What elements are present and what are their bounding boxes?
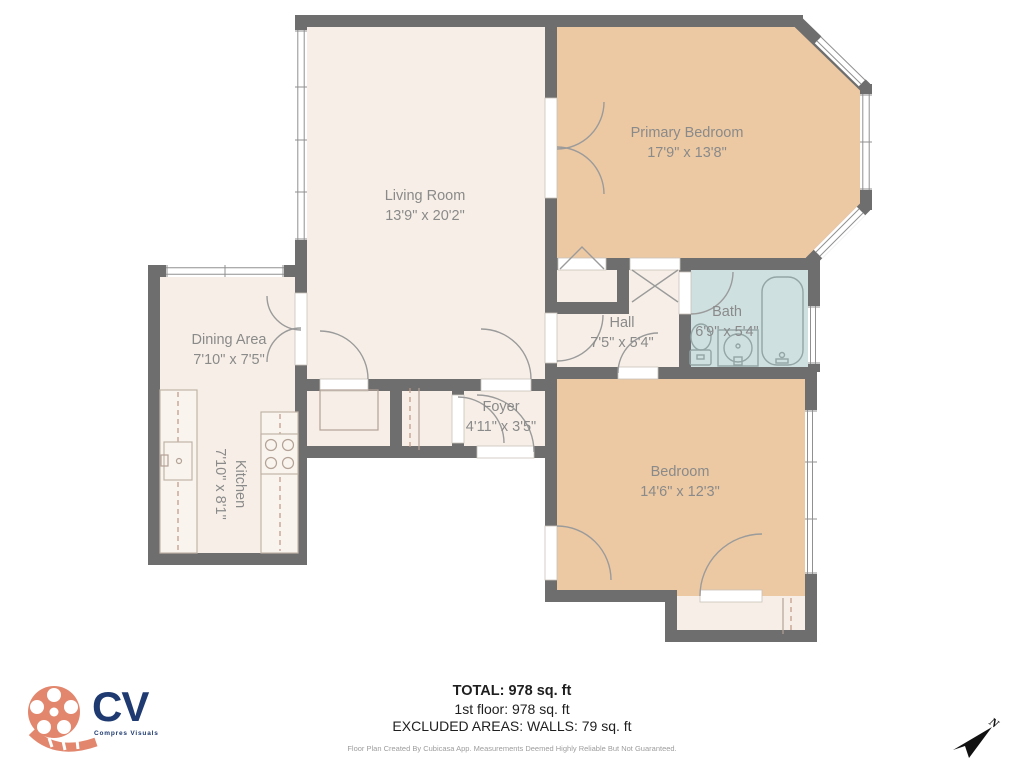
room-dims: 7'10" x 7'5" [192,350,267,370]
room-name: Living Room [385,186,466,206]
room-name: Foyer [466,397,536,417]
dining-area-label: Dining Area 7'10" x 7'5" [192,330,267,370]
stove [261,434,298,474]
bedroom-window [805,410,817,574]
film-reel-icon [20,680,100,760]
hall-label: Hall 7'5" x 5'4" [590,313,653,353]
kitchen-counter-right [261,412,298,553]
room-name: Bath [695,302,758,322]
room-dims: 4'11" x 3'5" [466,417,536,437]
room-dims: 7'10" x 8'1" [210,448,230,519]
floorplan-page: N Living Room 13'9" x 20'2" Primary Bedr… [0,0,1024,768]
room-name: Kitchen [230,448,250,519]
room-name: Hall [590,313,653,333]
primary-bedroom-label: Primary Bedroom 17'9" x 13'8" [631,123,744,163]
room-name: Dining Area [192,330,267,350]
bath-label: Bath 6'9" x 5'4" [695,302,758,342]
room-dims: 14'6" x 12'3" [640,482,720,502]
logo-subtext: Compres Visuals [94,730,159,737]
living-room-label: Living Room 13'9" x 20'2" [385,186,466,226]
company-logo: CV Compres Visuals [20,680,220,760]
room-dims: 6'9" x 5'4" [695,322,758,342]
kitchen-label: Kitchen 7'10" x 8'1" [210,448,250,519]
bath-window [808,306,820,364]
room-name: Bedroom [640,462,720,482]
dining-window [166,265,284,277]
room-dims: 7'5" x 5'4" [590,333,653,353]
logo-text: CV [92,686,148,728]
bedroom-label: Bedroom 14'6" x 12'3" [640,462,720,502]
kitchen-counter-left [160,390,197,553]
room-foyer-closets [301,385,464,454]
room-dims: 17'9" x 13'8" [631,143,744,163]
room-dims: 13'9" x 20'2" [385,206,466,226]
bay-window-right [860,94,872,190]
floorplan-canvas: N [0,0,1024,768]
foyer-label: Foyer 4'11" x 3'5" [466,397,536,437]
room-name: Primary Bedroom [631,123,744,143]
living-room-window [295,30,307,240]
